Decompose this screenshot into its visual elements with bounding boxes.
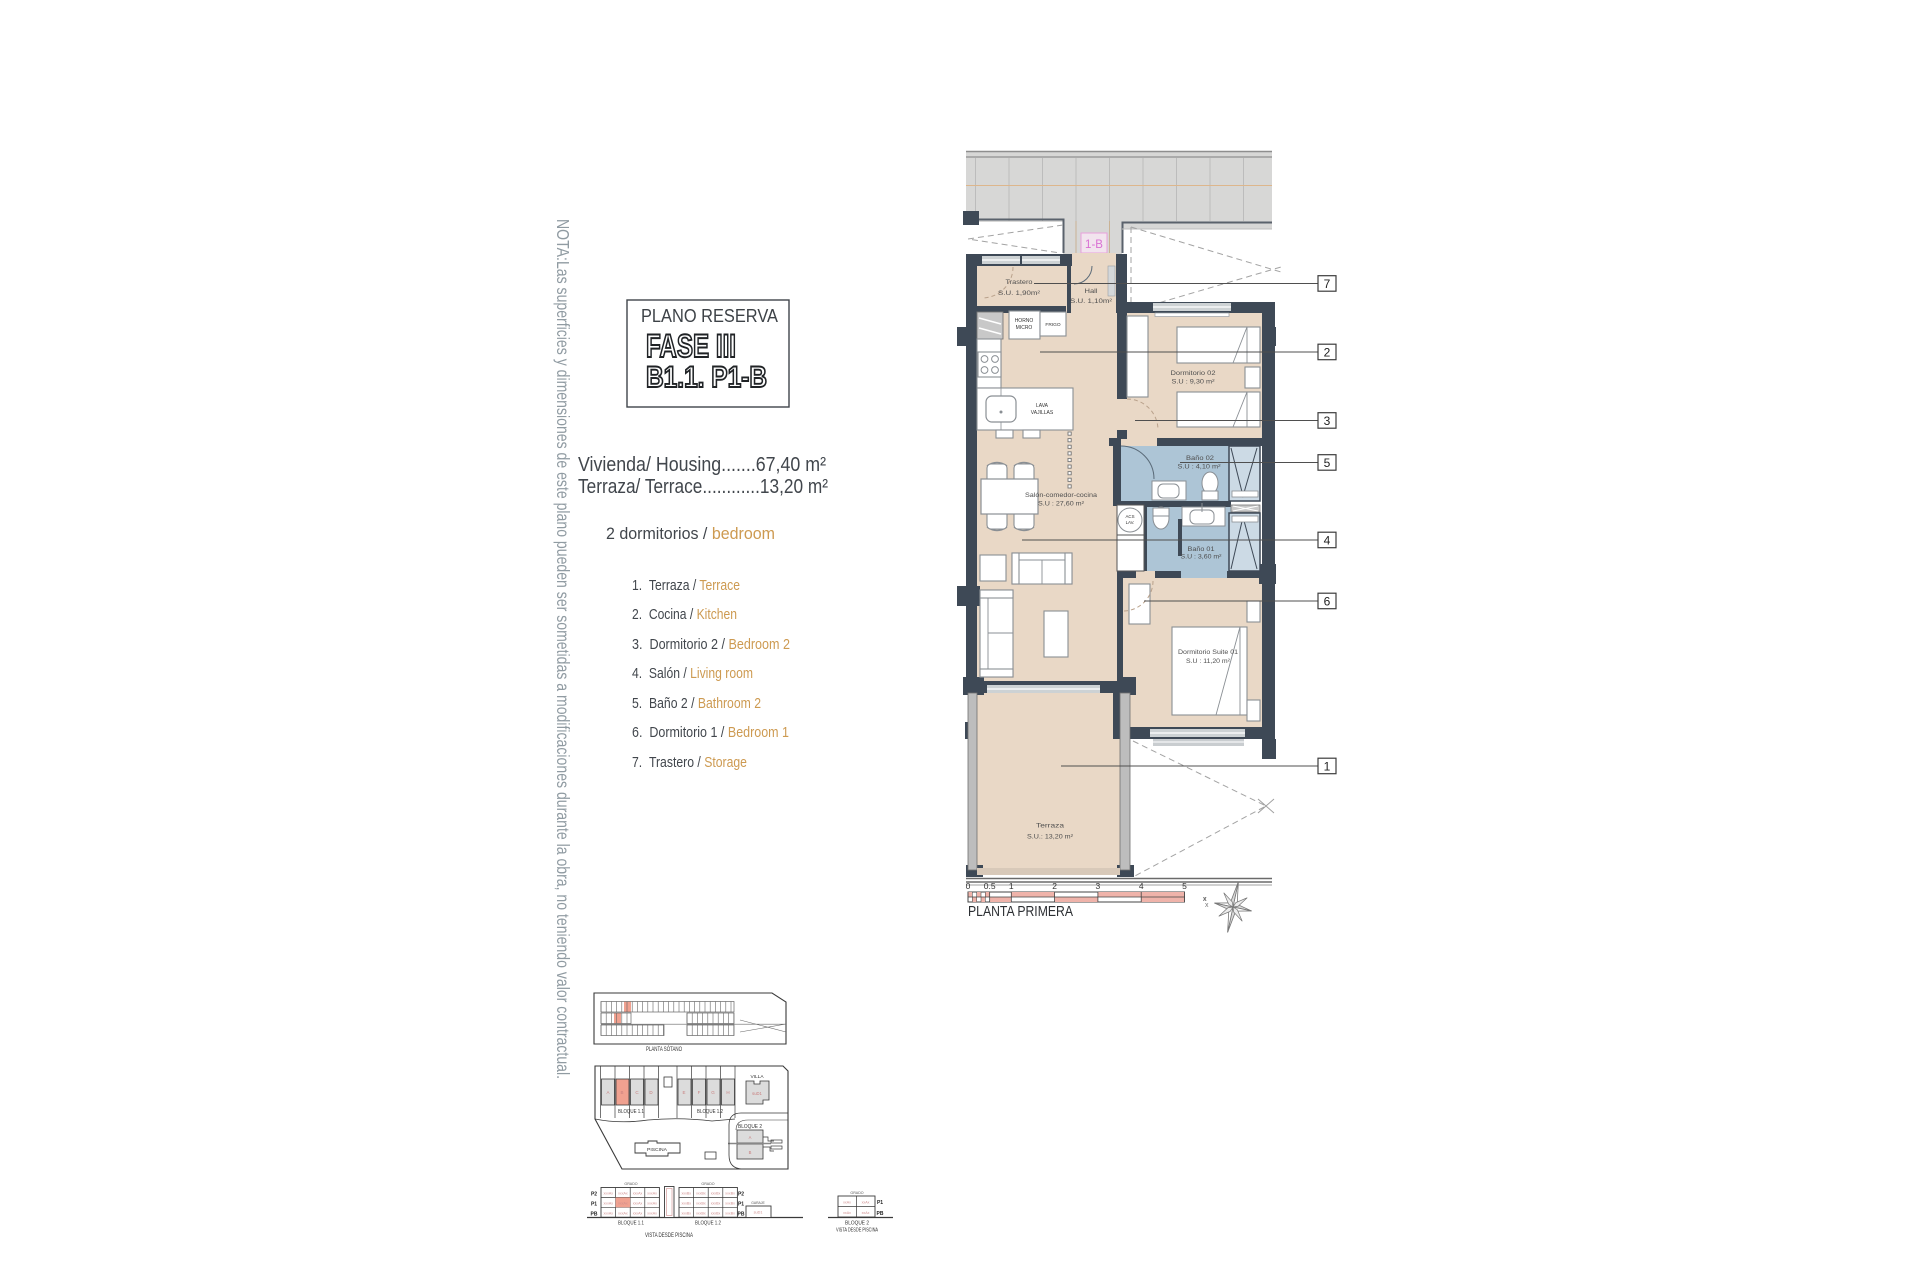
svg-text:P1: P1: [591, 1202, 597, 1208]
svg-text:3: 3: [1096, 881, 1101, 891]
svg-text:6. Dormitorio 1 / Bedroom 1: 6. Dormitorio 1 / Bedroom 1: [632, 724, 789, 741]
svg-text:P1: P1: [738, 1202, 744, 1208]
svg-text:3: 3: [1324, 414, 1331, 428]
svg-text:Trastero: Trastero: [1006, 279, 1034, 286]
svg-text:xxxAx: xxxAx: [618, 1211, 628, 1215]
svg-text:FASE III: FASE III: [646, 328, 736, 364]
svg-text:1: 1: [1009, 881, 1014, 891]
svg-text:BLOQUE 2: BLOQUE 2: [845, 1221, 869, 1227]
svg-text:PLANO RESERVA: PLANO RESERVA: [641, 306, 778, 326]
svg-text:xxxAx: xxxAx: [647, 1201, 657, 1205]
svg-text:2 dormitorios / bedroom: 2 dormitorios / bedroom: [606, 524, 775, 543]
svg-text:xxxBx: xxxBx: [711, 1192, 721, 1196]
svg-text:xxxAx: xxxAx: [604, 1192, 614, 1196]
svg-text:NOTA:Las superficies y dimensi: NOTA:Las superficies y dimensiones de es…: [553, 219, 573, 1079]
svg-text:Vivienda/ Housing.......67,40: Vivienda/ Housing.......67,40 m²: [578, 454, 826, 476]
svg-text:xxAx: xxAx: [862, 1211, 870, 1215]
svg-text:Baño 01: Baño 01: [1188, 546, 1216, 553]
svg-text:Baño 02: Baño 02: [1186, 455, 1215, 462]
svg-text:xxxAx: xxxAx: [647, 1192, 657, 1196]
svg-text:4. Salón / Living room: 4. Salón / Living room: [632, 665, 753, 682]
svg-text:xxAx: xxAx: [843, 1201, 851, 1205]
svg-text:xxxAx: xxxAx: [633, 1192, 643, 1196]
svg-text:4: 4: [1139, 881, 1144, 891]
svg-text:suD1: suD1: [754, 1211, 763, 1215]
svg-text:MICRO: MICRO: [1016, 325, 1033, 331]
svg-text:S.U. 1,10m²: S.U. 1,10m²: [1070, 298, 1112, 305]
svg-text:S.U : 9,30 m²: S.U : 9,30 m²: [1172, 379, 1215, 386]
svg-text:S.U : 11,20 m²: S.U : 11,20 m²: [1186, 658, 1230, 665]
svg-text:VISTA DESDE PISCINA: VISTA DESDE PISCINA: [836, 1228, 879, 1234]
svg-text:xxxBx: xxxBx: [682, 1192, 692, 1196]
svg-text:2: 2: [1324, 345, 1331, 359]
svg-text:GARAJE: GARAJE: [751, 1201, 765, 1205]
svg-text:xxAx: xxAx: [843, 1211, 851, 1215]
svg-text:BLOQUE 1.2: BLOQUE 1.2: [695, 1221, 721, 1227]
svg-text:BLOQUE 1.1: BLOQUE 1.1: [618, 1221, 644, 1227]
svg-text:H: H: [726, 1090, 729, 1095]
svg-text:xxxBx: xxxBx: [711, 1201, 721, 1205]
svg-text:5: 5: [1182, 881, 1187, 891]
svg-text:PB: PB: [591, 1212, 598, 1218]
svg-text:S.U : 4,10 m²: S.U : 4,10 m²: [1178, 464, 1221, 471]
svg-text:Hall: Hall: [1085, 288, 1098, 295]
svg-text:1-B: 1-B: [1085, 239, 1103, 251]
svg-text:GRADO: GRADO: [850, 1191, 863, 1195]
svg-text:7: 7: [1324, 277, 1331, 291]
svg-text:GRADO: GRADO: [624, 1182, 637, 1186]
svg-text:P2: P2: [738, 1192, 744, 1198]
svg-text:xxxAx: xxxAx: [633, 1201, 643, 1205]
svg-text:A: A: [749, 1135, 752, 1140]
svg-text:Dormitorio Suite 01: Dormitorio Suite 01: [1178, 649, 1239, 656]
svg-text:S.U.: 13,20 m²: S.U.: 13,20 m²: [1027, 834, 1073, 841]
svg-text:S.U : 3,60 m²: S.U : 3,60 m²: [1181, 554, 1222, 561]
svg-text:VAJILLAS: VAJILLAS: [1031, 410, 1054, 416]
svg-text:FRIGO: FRIGO: [1045, 322, 1060, 328]
svg-text:LAV.: LAV.: [1126, 520, 1135, 525]
svg-text:7. Trastero / Storage: 7. Trastero / Storage: [632, 754, 747, 771]
svg-text:xxxBx: xxxBx: [725, 1201, 735, 1205]
svg-text:S.U : 27,60 m²: S.U : 27,60 m²: [1038, 501, 1084, 508]
svg-text:0.5: 0.5: [984, 881, 996, 891]
svg-text:PISCINA: PISCINA: [647, 1147, 668, 1153]
svg-text:2. Cocina / Kitchen: 2. Cocina / Kitchen: [632, 606, 737, 623]
svg-text:xxxBx: xxxBx: [682, 1201, 692, 1205]
svg-text:VISTA DESDE PISCINA: VISTA DESDE PISCINA: [645, 1232, 694, 1239]
svg-text:Salón-comedor-cocina: Salón-comedor-cocina: [1025, 492, 1098, 499]
svg-text:ACS: ACS: [1125, 514, 1134, 519]
svg-text:xxxAx: xxxAx: [633, 1211, 643, 1215]
svg-text:PLANTA PRIMERA: PLANTA PRIMERA: [968, 904, 1073, 920]
svg-text:0: 0: [966, 881, 971, 891]
svg-text:1. Terraza / Terrace: 1. Terraza / Terrace: [632, 577, 740, 594]
svg-text:xxxBx: xxxBx: [696, 1201, 706, 1205]
svg-text:HORNO: HORNO: [1015, 318, 1034, 324]
svg-text:P1: P1: [877, 1200, 883, 1206]
svg-text:xxxBx: xxxBx: [725, 1211, 735, 1215]
svg-text:PB: PB: [738, 1212, 745, 1218]
svg-text:BLOQUE 1.2: BLOQUE 1.2: [697, 1109, 723, 1115]
svg-text:GRADO: GRADO: [701, 1182, 714, 1186]
svg-text:P2: P2: [591, 1192, 597, 1198]
svg-text:G: G: [711, 1090, 715, 1095]
svg-text:BLOQUE 1.1: BLOQUE 1.1: [618, 1109, 644, 1115]
svg-text:A: A: [606, 1090, 609, 1095]
svg-text:Terraza: Terraza: [1036, 823, 1065, 830]
svg-text:1: 1: [1324, 759, 1331, 773]
svg-text:VILLA: VILLA: [750, 1074, 764, 1080]
svg-text:xxxAx: xxxAx: [604, 1201, 614, 1205]
svg-text:PLANTA SÓTANO: PLANTA SÓTANO: [646, 1046, 682, 1053]
svg-text:x: x: [1205, 902, 1209, 909]
svg-text:xxxBx: xxxBx: [682, 1211, 692, 1215]
svg-text:5: 5: [1324, 456, 1331, 470]
svg-text:suD1: suD1: [752, 1091, 762, 1096]
svg-text:B1.1. P1-B: B1.1. P1-B: [646, 361, 767, 394]
svg-text:xxxAx: xxxAx: [604, 1211, 614, 1215]
svg-text:F: F: [698, 1090, 701, 1095]
svg-text:xxxBx: xxxBx: [696, 1192, 706, 1196]
svg-text:4: 4: [1324, 533, 1331, 547]
svg-text:xxxBx: xxxBx: [725, 1192, 735, 1196]
svg-text:xxxAx: xxxAx: [647, 1211, 657, 1215]
svg-text:3. Dormitorio 2 / Bedroom 2: 3. Dormitorio 2 / Bedroom 2: [632, 636, 790, 653]
svg-text:S.U. 1,90m²: S.U. 1,90m²: [998, 290, 1040, 297]
svg-text:B: B: [749, 1150, 752, 1155]
svg-text:xxxBx: xxxBx: [696, 1211, 706, 1215]
svg-text:BLOQUE 2: BLOQUE 2: [738, 1124, 762, 1130]
svg-text:E: E: [682, 1090, 685, 1095]
svg-text:Terraza/ Terrace............13: Terraza/ Terrace............13,20 m²: [578, 476, 828, 498]
svg-text:6: 6: [1324, 594, 1331, 608]
svg-text:2: 2: [1052, 881, 1057, 891]
svg-text:xxxAx: xxxAx: [618, 1201, 628, 1205]
svg-text:B: B: [620, 1090, 623, 1095]
svg-text:LAVA: LAVA: [1036, 403, 1049, 409]
svg-text:Dormitorio 02: Dormitorio 02: [1171, 370, 1217, 377]
svg-text:PB: PB: [877, 1211, 884, 1217]
svg-text:xxxAx: xxxAx: [618, 1192, 628, 1196]
svg-text:xxxBx: xxxBx: [711, 1211, 721, 1215]
svg-text:5. Baño 2 / Bathroom 2: 5. Baño 2 / Bathroom 2: [632, 695, 761, 712]
svg-text:xxAx: xxAx: [862, 1201, 870, 1205]
